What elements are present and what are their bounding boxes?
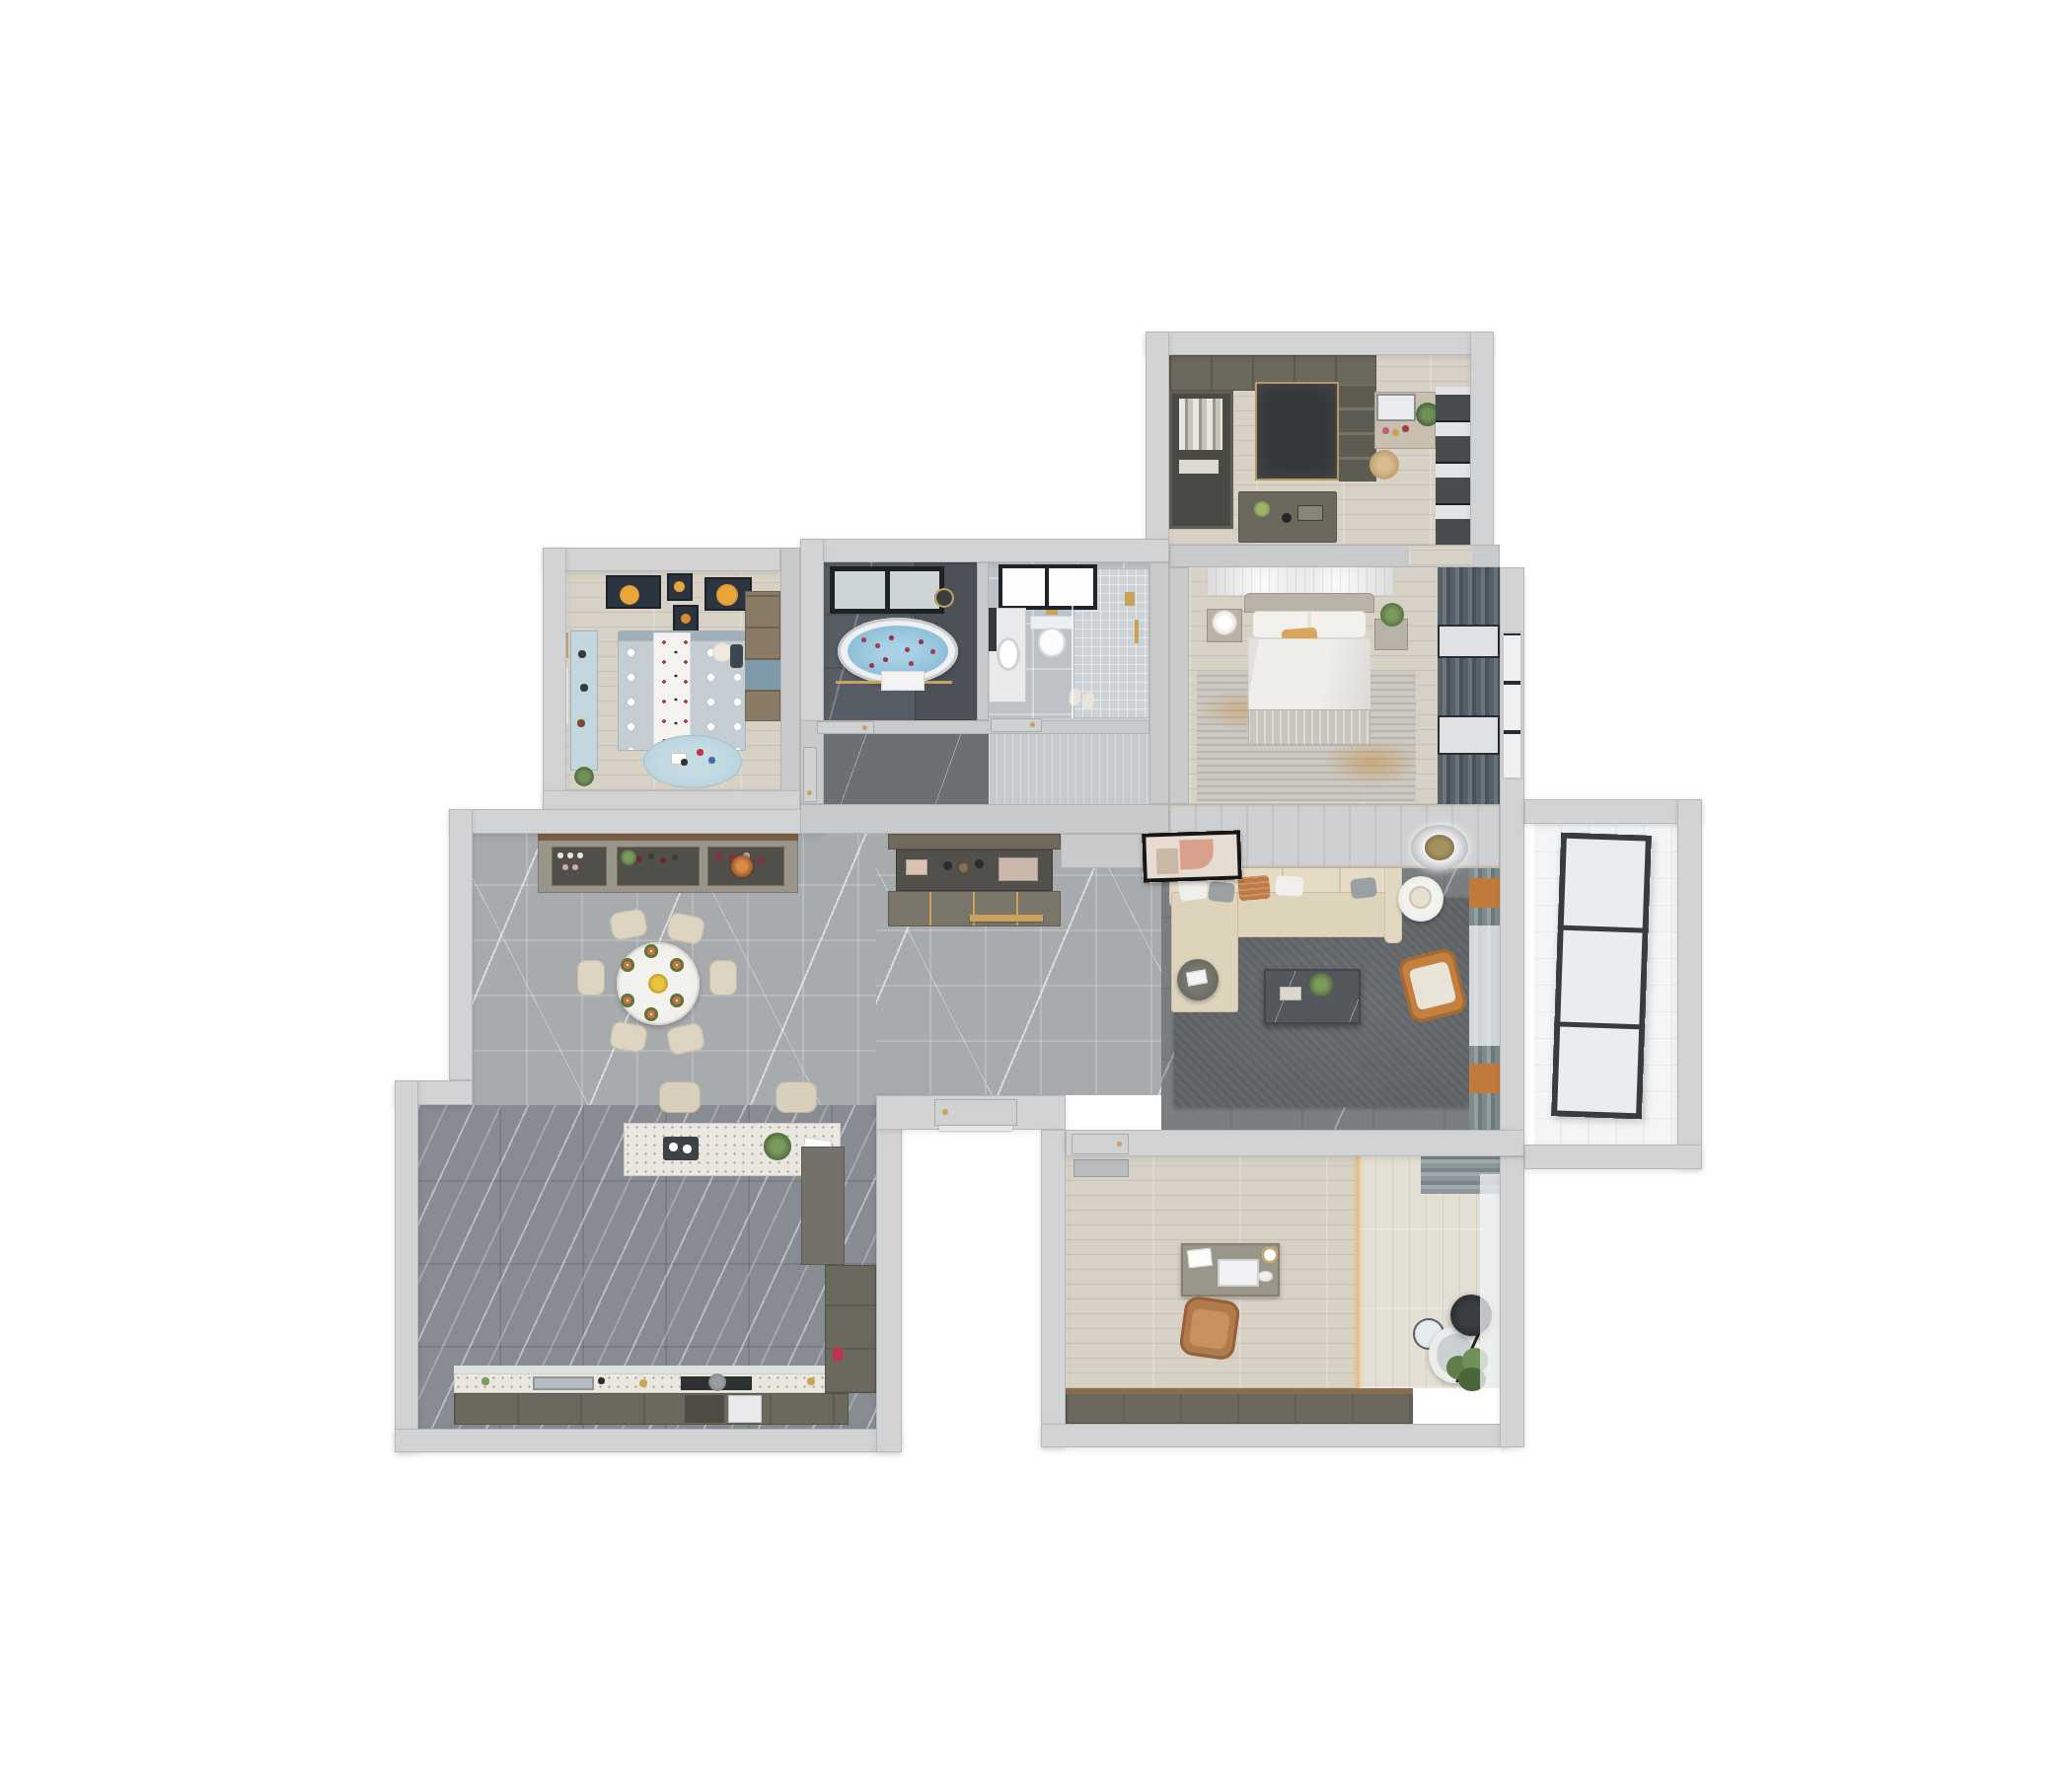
- open-wardrobe: [1169, 391, 1233, 529]
- shoe-cabinet: [888, 834, 1061, 926]
- wall-bathB-east: [1149, 562, 1169, 804]
- open-niche: [685, 1395, 724, 1423]
- counter-items: [481, 1377, 489, 1385]
- bar-stool: [659, 1081, 701, 1113]
- pantry-cabinet: [801, 1147, 845, 1265]
- door-handle: [1117, 1142, 1122, 1147]
- door-master-bath: [817, 721, 874, 734]
- art-shape-beige: [1156, 848, 1179, 874]
- bed-headboard: [1244, 593, 1374, 613]
- door-entrance: [934, 1099, 1017, 1126]
- red-kettle: [833, 1348, 843, 1361]
- hanging-clothes: [1179, 399, 1222, 450]
- bed-runner: [653, 632, 691, 751]
- wall-office-south: [1041, 1424, 1510, 1447]
- wardrobe-blue-section: [745, 660, 780, 690]
- room-dining: [473, 834, 876, 1105]
- shower-pipe: [1135, 620, 1139, 643]
- toy-book: [671, 753, 687, 765]
- door-guest-bath: [991, 718, 1042, 732]
- toilet-bowl: [1038, 628, 1066, 657]
- ceiling-light-inner: [1425, 835, 1454, 860]
- wall-office-west: [1041, 1130, 1066, 1447]
- toys: [697, 749, 703, 756]
- wall-bath-top: [800, 539, 1169, 562]
- office-low-cabinet: [1066, 1388, 1413, 1424]
- shoe-cabinet-top: [888, 834, 1061, 850]
- place-setting: [644, 1007, 658, 1021]
- ceiling-light-living: [1411, 825, 1468, 870]
- wine-cabinet: [538, 834, 798, 893]
- pillow-grey: [1208, 881, 1235, 904]
- niche-decor: [906, 859, 927, 875]
- cabinet-plant: [621, 850, 636, 865]
- space-poster-large: [606, 575, 661, 609]
- dining-chair: [609, 908, 648, 941]
- tray: [1297, 505, 1323, 521]
- wall-foyer-north: [800, 804, 1169, 834]
- doormat: [1073, 1159, 1129, 1177]
- door-kids-room: [803, 747, 817, 802]
- sheer-window-gap: [1438, 625, 1500, 658]
- cabinet-niche-1: [552, 847, 607, 886]
- place-setting: [670, 958, 684, 972]
- doorway-closet-master: [1409, 547, 1472, 565]
- gold-floor-inlay: [970, 915, 1043, 922]
- wall-balcony-right: [1677, 799, 1702, 1169]
- wall-living-south: [1066, 1130, 1524, 1156]
- office-chair: [1178, 1295, 1241, 1361]
- wall-kids-top: [543, 548, 780, 571]
- panel-frame-bar: [1558, 925, 1649, 932]
- window-mullion: [1045, 564, 1049, 610]
- poster-planet2: [681, 614, 691, 624]
- floor-plan-render: [0, 0, 2072, 1776]
- island-tray: [663, 1137, 699, 1160]
- cooktop: [681, 1376, 752, 1390]
- pillow-white2: [1275, 875, 1303, 897]
- niche-mirror: [999, 857, 1038, 881]
- small-plate: [1258, 1271, 1273, 1282]
- door-handle: [862, 725, 867, 730]
- art-shape-pink: [1179, 839, 1214, 869]
- curtain-orange-accent2: [1469, 1064, 1500, 1093]
- table-lamp-living: [1409, 886, 1432, 909]
- place-setting: [644, 944, 658, 958]
- bottle-rack: [715, 852, 722, 859]
- bath-water: [848, 626, 948, 677]
- bed: [1248, 593, 1370, 745]
- room-master-bedroom: [1189, 567, 1500, 804]
- pan: [708, 1373, 726, 1391]
- wall-kitchen-west: [395, 1080, 418, 1452]
- room-walk-in-closet: [1169, 355, 1470, 545]
- flush-plate: [1046, 610, 1058, 615]
- shower-fixture: [1125, 592, 1135, 606]
- kids-bed: [618, 640, 746, 751]
- shower-head: [934, 588, 954, 608]
- table-lamp: [1213, 611, 1236, 634]
- books: [1186, 969, 1208, 986]
- wash-basin: [997, 637, 1020, 671]
- curtain-sheer: [1469, 925, 1500, 1046]
- sheer-window-gap2: [1438, 715, 1500, 755]
- bar-stool: [776, 1081, 817, 1113]
- room-foyer: [876, 834, 1161, 1095]
- place-setting: [621, 958, 634, 972]
- master-window: [1502, 631, 1522, 779]
- wall-kitchen-south: [395, 1429, 902, 1452]
- kitchen-counter: [454, 1373, 849, 1393]
- copper-pendant: [731, 855, 753, 877]
- rose-petals: [861, 637, 866, 642]
- wall-kids-right: [780, 548, 800, 814]
- poster-moon2: [716, 584, 738, 606]
- space-poster-small2: [673, 605, 699, 632]
- papers: [1187, 1248, 1213, 1268]
- wall-kitchen-east: [876, 1095, 902, 1452]
- wall-dining-top: [449, 809, 824, 834]
- wall-office-east: [1500, 1156, 1524, 1447]
- room-guest-bathroom: [989, 562, 1149, 804]
- towel: [881, 671, 925, 691]
- wall-closet-right: [1470, 332, 1494, 567]
- entrance-threshold: [939, 1126, 1012, 1131]
- floor-light-strip: [1356, 1156, 1360, 1388]
- toilet: [1030, 616, 1073, 659]
- dining-chair: [665, 912, 705, 946]
- poster-moon: [620, 585, 639, 605]
- vanity-mirror: [1376, 394, 1416, 421]
- office-desk: [1181, 1243, 1280, 1296]
- room-living: [1161, 868, 1500, 1130]
- door-office: [1072, 1134, 1129, 1154]
- curtain-orange-accent: [1469, 878, 1500, 908]
- rattan-basket: [1369, 450, 1399, 480]
- master-curtains: [1438, 567, 1500, 804]
- office-sheer: [1480, 1174, 1500, 1388]
- glazing-panel: [1551, 832, 1652, 1119]
- wall-bath-west: [800, 539, 824, 734]
- wall-closet-left: [1146, 332, 1169, 545]
- room-kids-bedroom: [566, 571, 780, 790]
- nightstand-plant: [1380, 603, 1404, 627]
- door-handle: [807, 790, 812, 795]
- art-frame-tv: [1142, 830, 1242, 882]
- tall-cabinet-column: [825, 1265, 876, 1393]
- niche-items: [943, 861, 952, 870]
- teddy-bear: [712, 642, 732, 662]
- cosmetics: [1382, 427, 1389, 434]
- side-table-round: [1398, 876, 1443, 922]
- island-dresser: [1238, 491, 1337, 543]
- pillow-grey2: [1350, 877, 1377, 900]
- side-table-dark: [1177, 959, 1219, 1000]
- dining-chair: [577, 960, 605, 996]
- desk-items: [578, 650, 586, 658]
- flower-vase: [1254, 501, 1270, 517]
- island-plant: [764, 1133, 791, 1160]
- coffee-table-tray: [1280, 987, 1301, 1000]
- dining-chair: [709, 960, 737, 996]
- wall-master-west: [1169, 567, 1189, 804]
- folded-linen: [1179, 460, 1219, 474]
- glassware: [557, 852, 563, 858]
- foot-throw: [1248, 709, 1370, 745]
- floor-plant: [574, 767, 594, 786]
- base-cabinets: [454, 1393, 849, 1425]
- space-poster-small1: [667, 573, 693, 601]
- wall-closet-top: [1146, 332, 1494, 355]
- dishwasher: [728, 1395, 762, 1423]
- door-handle: [942, 1109, 948, 1115]
- flower-centerpiece: [648, 974, 668, 994]
- living-curtains: [1469, 860, 1500, 1130]
- room-office: [1066, 1156, 1500, 1424]
- coffee-table: [1264, 969, 1361, 1024]
- window-mullion: [885, 566, 890, 614]
- wall-balcony-bottom: [1524, 1145, 1702, 1169]
- glass-wardrobe: [1255, 382, 1339, 481]
- poster-planet: [674, 581, 685, 592]
- wall-dining-west: [449, 809, 473, 1080]
- kids-desk-cabinet: [570, 630, 598, 771]
- decor-vase: [1282, 513, 1292, 523]
- room-master-bathroom: [824, 562, 977, 720]
- dark-pillow: [730, 644, 743, 668]
- door-handle: [1030, 722, 1035, 727]
- dining-chair: [609, 1020, 648, 1054]
- coffee-cup: [1262, 1247, 1278, 1263]
- wall-balcony-top: [1524, 799, 1702, 824]
- faucet: [598, 1377, 605, 1384]
- dining-chair: [665, 1022, 705, 1057]
- panel-frame-bar2: [1554, 1021, 1645, 1029]
- place-setting: [670, 994, 684, 1007]
- kitchen-sink: [533, 1376, 594, 1390]
- computer: [1218, 1259, 1259, 1287]
- place-setting: [621, 994, 634, 1007]
- wall-bath-divider: [977, 562, 989, 720]
- vanity-counter: [989, 608, 1026, 703]
- roller-blinds: [1436, 387, 1470, 545]
- cabinet-wood-top: [538, 834, 798, 841]
- room-hallway: [824, 734, 989, 804]
- wall-kids-left: [543, 548, 566, 814]
- cabinet-wood-edge: [1066, 1388, 1413, 1394]
- room-kitchen: [418, 1105, 876, 1429]
- armchair-cushion: [1409, 961, 1457, 1010]
- room-balcony: [1534, 824, 1677, 1145]
- backsplash: [454, 1366, 849, 1373]
- shoe-cabinet-niche: [896, 850, 1053, 891]
- cups: [669, 1143, 678, 1151]
- kids-wardrobe: [745, 591, 780, 721]
- vanity-mirror: [989, 608, 997, 651]
- pillow-rust: [1237, 875, 1271, 902]
- headboard-wall-panel: [1207, 567, 1394, 595]
- guest-bath-window: [999, 564, 1097, 610]
- kids-round-rug: [643, 735, 742, 788]
- bathroom-window: [830, 566, 944, 614]
- dining-table: [617, 942, 700, 1025]
- chair-seat: [1188, 1308, 1230, 1351]
- bed-duvet: [1248, 638, 1370, 715]
- coffee-table-plant: [1309, 973, 1333, 997]
